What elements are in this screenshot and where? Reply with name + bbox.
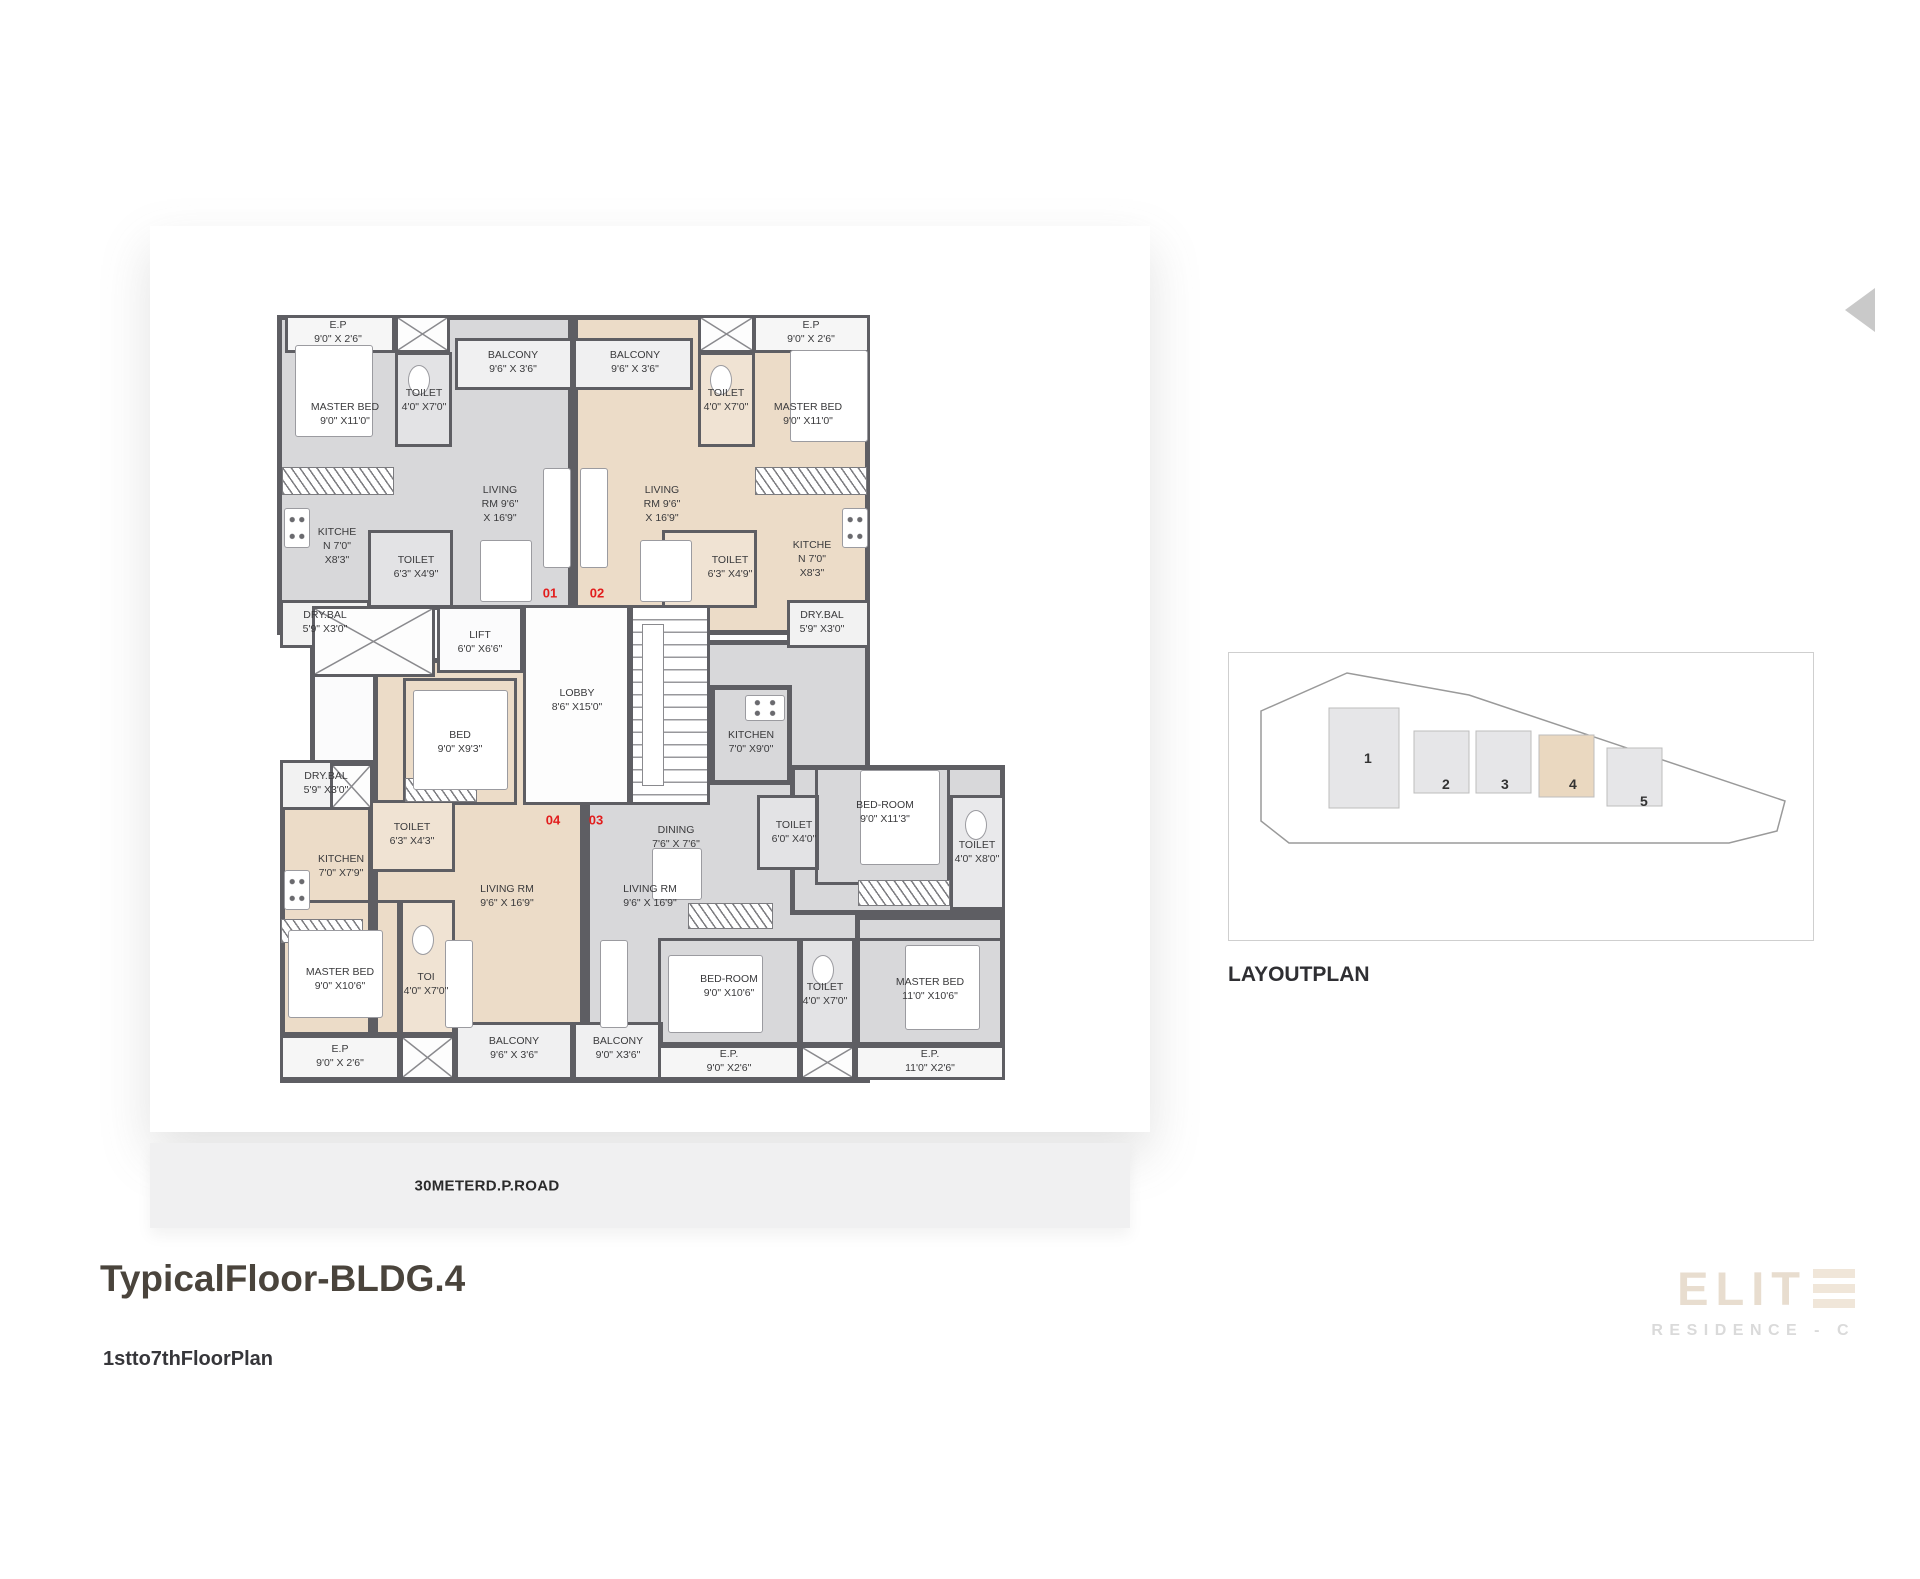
room-label: LIFT6'0" X6'6"	[458, 629, 503, 657]
room-label: E.P.11'0" X2'6"	[905, 1048, 955, 1076]
shaft	[698, 315, 755, 353]
building-number: 4	[1569, 776, 1577, 792]
edge-arrow-icon	[1845, 288, 1875, 332]
room-label: DRY.BAL5'9" X3'0"	[304, 770, 349, 798]
room-label: DRY.BAL5'9" X3'0"	[800, 609, 845, 637]
wardrobe-hatch	[858, 880, 950, 906]
room-label: KITCHEN7'0" X7'9"	[318, 853, 364, 881]
room-label: BALCONY9'6" X 3'6"	[489, 1035, 539, 1063]
room-label: TOILET4'0" X8'0"	[955, 839, 1000, 867]
shaft	[400, 1035, 455, 1080]
page-subtitle: 1stto7thFloorPlan	[103, 1348, 273, 1371]
layout-plan-inset: 12345	[1228, 652, 1814, 941]
room-label: BED-ROOM9'0" X11'3"	[856, 799, 914, 827]
staircase	[630, 605, 710, 805]
room-label: TOILET4'0" X7'0"	[803, 981, 848, 1009]
room-label: MASTER BED9'0" X11'0"	[774, 401, 842, 429]
triple-bar-e-icon	[1813, 1269, 1855, 1308]
brand-logo: ELIT RESIDENCE - C	[1620, 1268, 1855, 1340]
unit-number: 04	[546, 813, 560, 828]
furniture	[640, 540, 692, 602]
room-label: DINING7'6" X 7'6"	[652, 824, 700, 852]
room-label: KITCHEN 7'0"X8'3"	[318, 526, 357, 568]
road-label: 30METERD.P.ROAD	[414, 1177, 559, 1194]
room-label: TOILET6'3" X4'9"	[708, 554, 753, 582]
room-label: BALCONY9'6" X 3'6"	[488, 349, 538, 377]
wardrobe-hatch	[282, 467, 394, 495]
room-label: TOILET4'0" X7'0"	[402, 387, 447, 415]
room-label: E.P9'0" X 2'6"	[316, 1043, 364, 1071]
furniture	[445, 940, 473, 1028]
shaft	[395, 315, 450, 353]
stove-icon	[842, 508, 868, 548]
room-label: LIVING RM9'6" X 16'9"	[480, 883, 534, 911]
stove-icon	[745, 695, 785, 721]
room-label: TOILET6'3" X4'9"	[394, 554, 439, 582]
room-label: E.P.9'0" X2'6"	[707, 1048, 752, 1076]
building-footprint	[1607, 748, 1662, 806]
brand-wordmark: ELIT	[1620, 1268, 1855, 1310]
room-label: TOILET6'3" X4'3"	[390, 821, 435, 849]
building-number: 3	[1501, 776, 1509, 792]
room-label: BALCONY9'6" X 3'6"	[610, 349, 660, 377]
furniture	[580, 468, 608, 568]
room-label: KITCHEN 7'0"X8'3"	[793, 539, 832, 581]
room-label: DRY.BAL5'9" X3'0"	[303, 609, 348, 637]
brand-text: ELIT	[1677, 1268, 1807, 1310]
room-label: MASTER BED11'0" X10'6"	[896, 976, 964, 1004]
building-number: 1	[1364, 750, 1372, 766]
page-title: TypicalFloor-BLDG.4	[100, 1258, 465, 1300]
layout-plan-heading: LAYOUTPLAN	[1228, 963, 1370, 987]
room-label: TOILET6'0" X4'0"	[772, 819, 817, 847]
brand-tagline: RESIDENCE - C	[1620, 1322, 1855, 1340]
wardrobe-hatch	[755, 467, 867, 495]
building-number: 5	[1640, 793, 1648, 809]
room-label: LIVINGRM 9'6"X 16'9"	[482, 484, 519, 526]
room-label: MASTER BED9'0" X11'0"	[311, 401, 379, 429]
room-label: LOBBY8'6" X15'0"	[552, 687, 603, 715]
furniture	[480, 540, 532, 602]
room-label: LIVINGRM 9'6"X 16'9"	[644, 484, 681, 526]
toilet-fixture-icon	[965, 810, 987, 840]
room-label: BED9'0" X9'3"	[438, 729, 483, 757]
unit-number: 01	[543, 586, 557, 601]
unit-number: 02	[590, 586, 604, 601]
furniture	[543, 468, 571, 568]
floor-plan: E.P9'0" X 2'6"MASTER BED9'0" X11'0"TOILE…	[160, 235, 1140, 1125]
road-band: 30METERD.P.ROAD	[150, 1143, 1130, 1228]
room-label: LIVING RM9'6" X 16'9"	[623, 883, 677, 911]
room-label: TOILET4'0" X7'0"	[704, 387, 749, 415]
toilet-fixture-icon	[412, 925, 434, 955]
layout-plan-drawing: 12345	[1229, 653, 1813, 940]
stove-icon	[284, 508, 310, 548]
page: { "title": "TypicalFloor-BLDG.4", "subti…	[0, 0, 1920, 1579]
room-label: MASTER BED9'0" X10'6"	[306, 966, 374, 994]
building-footprint	[1539, 735, 1594, 797]
room-label: E.P9'0" X 2'6"	[787, 319, 835, 347]
room-label: BALCONY9'0" X3'6"	[593, 1035, 643, 1063]
shaft	[800, 1045, 855, 1080]
room-label: E.P9'0" X 2'6"	[314, 319, 362, 347]
wardrobe-hatch	[688, 903, 773, 929]
furniture	[600, 940, 628, 1028]
building-number: 2	[1442, 776, 1450, 792]
room-label: TOI4'0" X7'0"	[404, 971, 449, 999]
room-label: KITCHEN7'0" X9'0"	[728, 729, 774, 757]
room-label: BED-ROOM9'0" X10'6"	[700, 973, 758, 1001]
unit-number: 03	[589, 813, 603, 828]
stove-icon	[284, 870, 310, 910]
